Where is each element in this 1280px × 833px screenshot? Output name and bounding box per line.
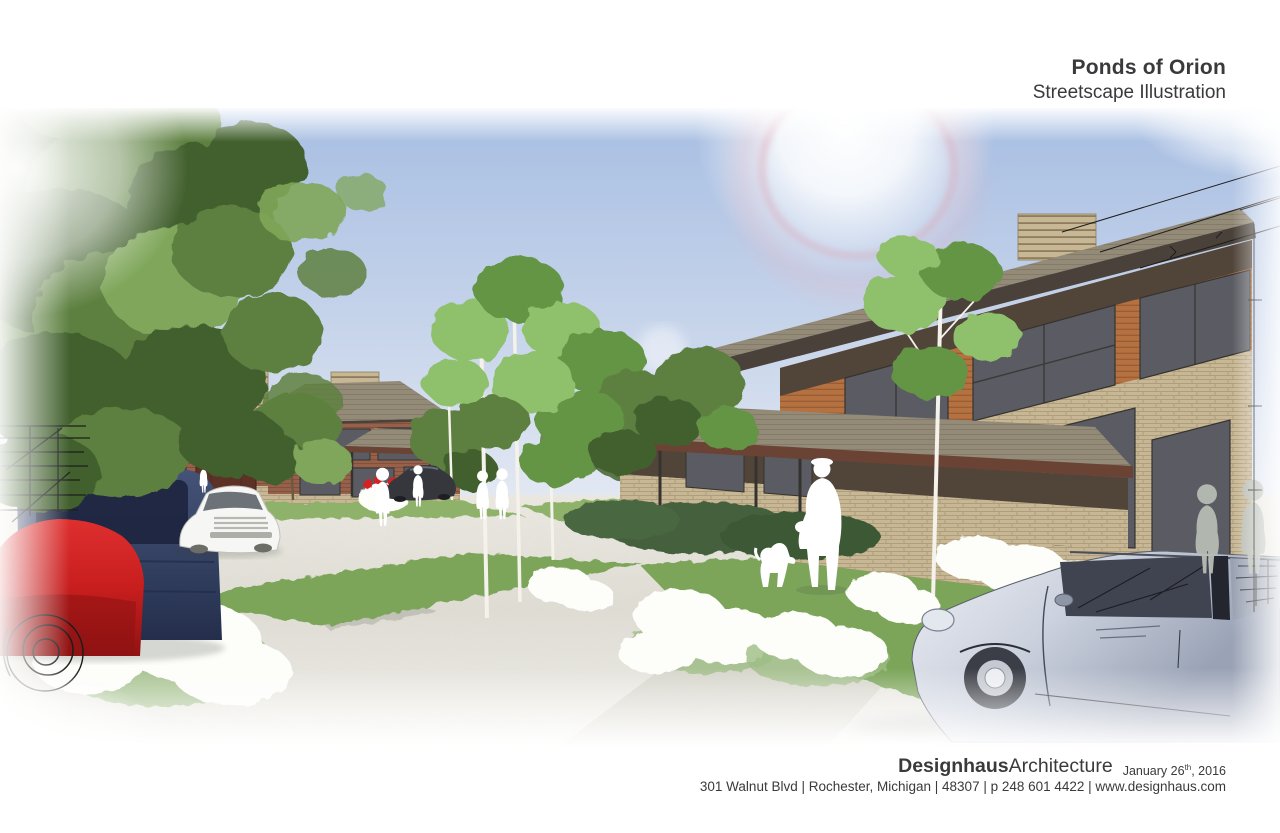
page-subtitle: Streetscape Illustration [1033,81,1226,106]
date-main: January 26 [1123,764,1185,778]
mirror [1055,594,1073,606]
sheet-date: January 26th, 2016 [1123,763,1226,778]
firm-logo: DesignhausArchitecture [898,755,1113,778]
illustration-canvas [0,0,1280,828]
page-title: Ponds of Orion [1033,54,1226,81]
streetscape-illustration [0,0,1280,828]
headlight [922,609,954,631]
firm-line: DesignhausArchitecture January 26th, 201… [700,755,1226,778]
bumper [210,532,272,538]
firm-address: 301 Walnut Blvd | Rochester, Michigan | … [700,779,1226,794]
title-block: Ponds of Orion Streetscape Illustration [1033,54,1226,106]
windshield [1060,556,1212,618]
footer-block: DesignhausArchitecture January 26th, 201… [700,755,1226,794]
firm-name-bold: Designhaus [898,755,1009,777]
date-tail: , 2016 [1191,764,1226,778]
firm-name-light: Architecture [1009,755,1113,777]
